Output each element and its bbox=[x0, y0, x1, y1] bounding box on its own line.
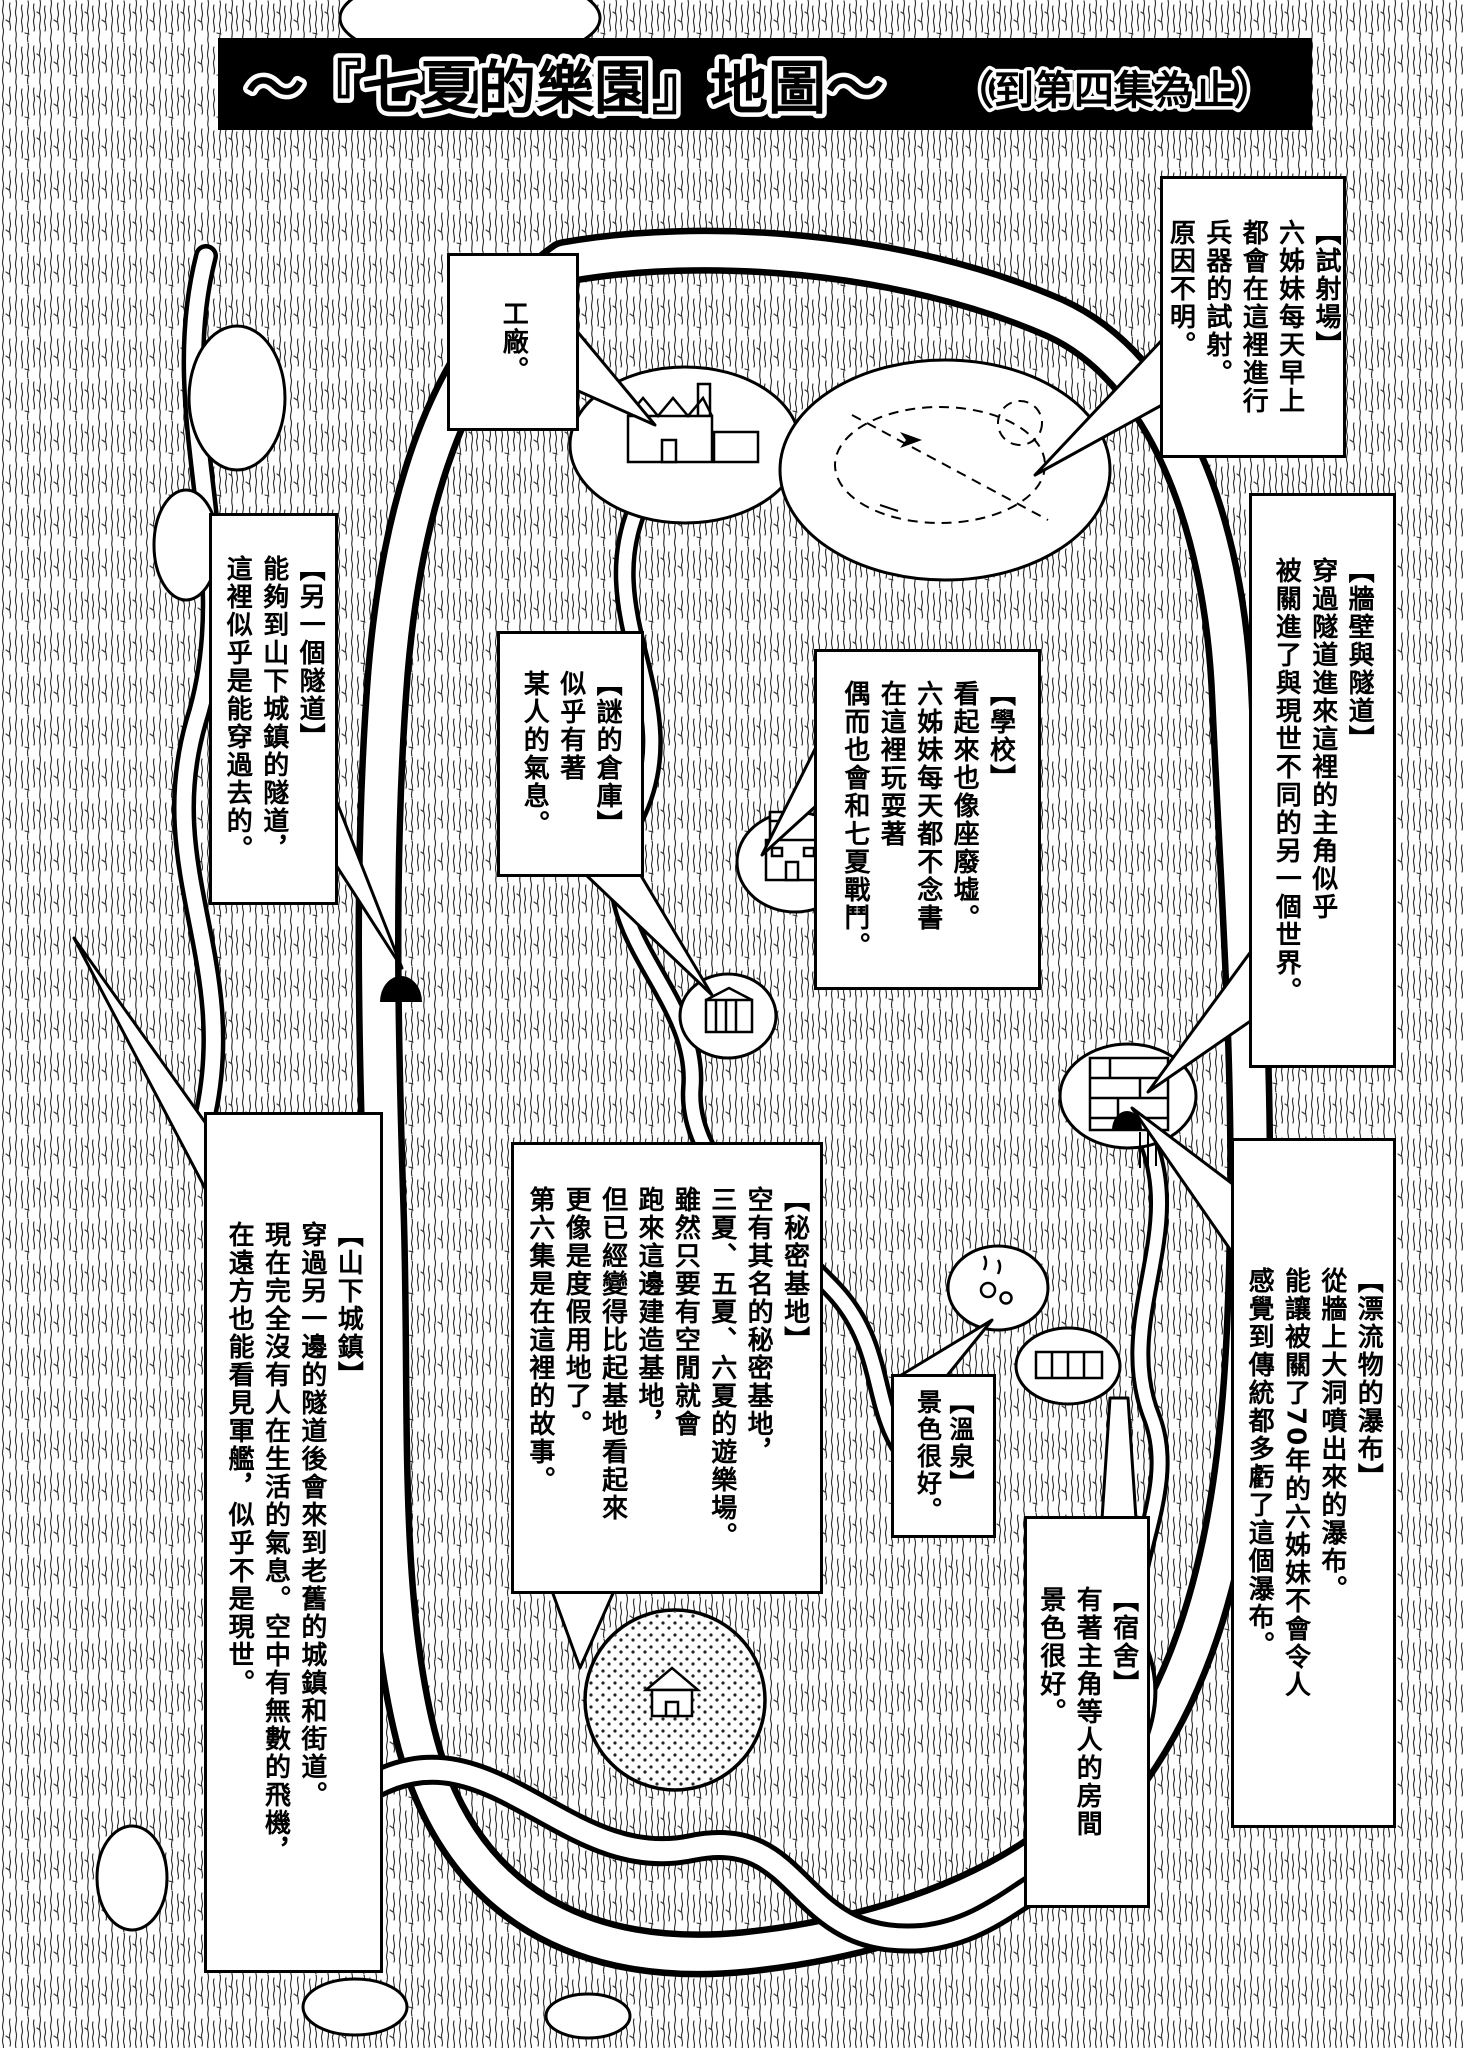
callout-secret-base: 【秘密基地】 空有其名的秘密基地， 三夏、五夏、六夏的遊樂場。 雖然只要有空閒就… bbox=[511, 1142, 823, 1594]
callout-dormitory-text: 【宿舍】 有著主角等人的房間 景色很好。 bbox=[1032, 1586, 1141, 1838]
callout-hot-spring-text: 【溫泉】 景色很好。 bbox=[911, 1389, 976, 1524]
callout-test-range: 【試射場】 六姊妹每天早上 都會在這裡進行 兵器的試射。 原因不明。 bbox=[1160, 176, 1346, 458]
callout-town-text: 【山下城鎮】 穿過另一邊的隧道後會來到老舊的城鎮和街道。 現在完全沒有人在生活的… bbox=[221, 1221, 367, 1865]
callout-warehouse-text: 【謎的倉庫】 似乎有著 某人的氣息。 bbox=[516, 670, 625, 838]
callout-another-tunnel: 【另一個隧道】 能夠到山下城鎮的隧道， 這裡似乎是能穿過去的。 bbox=[209, 513, 338, 905]
callout-waterfall-text: 【漂流物的瀑布】 從牆上大洞噴出來的瀑布。 能讓被關了70年的六姊妹不會令人 感… bbox=[1241, 1267, 1387, 1699]
callout-school-tail bbox=[762, 745, 817, 855]
callout-waterfall-tail bbox=[1132, 1108, 1234, 1255]
callout-secret-base-text: 【秘密基地】 空有其名的秘密基地， 三夏、五夏、六夏的遊樂場。 雖然只要有空閒就… bbox=[521, 1186, 812, 1550]
callout-warehouse-tail bbox=[585, 874, 712, 995]
map-title: ～『七夏的樂園』地圖～ bbox=[246, 54, 884, 122]
callout-hot-spring-tail bbox=[898, 1320, 992, 1377]
map-title-suffix: （到第四集為止） bbox=[954, 68, 1274, 114]
callout-school-text: 【學校】 看起來也像座廢墟。 六姊妹每天都不念書 在這裡玩耍著 偶而也會和七夏戰… bbox=[837, 680, 1019, 960]
callout-school: 【學校】 看起來也像座廢墟。 六姊妹每天都不念書 在這裡玩耍著 偶而也會和七夏戰… bbox=[814, 649, 1041, 990]
callout-test-range-tail bbox=[1035, 340, 1162, 475]
callout-town: 【山下城鎮】 穿過另一邊的隧道後會來到老舊的城鎮和街道。 現在完全沒有人在生活的… bbox=[204, 1112, 383, 1973]
callout-another-tunnel-tail bbox=[336, 800, 402, 968]
callout-secret-base-tail bbox=[552, 1591, 614, 1668]
callout-wall-tunnel: 【牆壁與隧道】 穿過隧道進來這裡的主角似乎 被關進了與現世不同的另一個世界。 bbox=[1249, 493, 1396, 1068]
callout-test-range-text: 【試射場】 六姊妹每天早上 都會在這裡進行 兵器的試射。 原因不明。 bbox=[1162, 219, 1344, 415]
callout-another-tunnel-text: 【另一個隧道】 能夠到山下城鎮的隧道， 這裡似乎是能穿過去的。 bbox=[219, 555, 328, 863]
callout-hot-spring: 【溫泉】 景色很好。 bbox=[891, 1374, 996, 1538]
callout-wall-tunnel-tail bbox=[1148, 950, 1252, 1092]
callout-dormitory: 【宿舍】 有著主角等人的房間 景色很好。 bbox=[1024, 1516, 1150, 1908]
callout-factory-text: 工廠。 bbox=[495, 300, 531, 384]
callout-dormitory-tail bbox=[1102, 1398, 1136, 1519]
manga-map-page: ～『七夏的樂園』地圖～ （到第四集為止） 工廠。 【試射場】 六姊妹每天早上 都… bbox=[0, 0, 1464, 2048]
callout-wall-tunnel-text: 【牆壁與隧道】 穿過隧道進來這裡的主角似乎 被關進了與現世不同的另一個世界。 bbox=[1268, 557, 1377, 1005]
callout-factory: 工廠。 bbox=[447, 253, 579, 431]
callout-town-tail bbox=[74, 938, 207, 1192]
callout-factory-tail bbox=[576, 330, 655, 425]
callout-warehouse: 【謎的倉庫】 似乎有著 某人的氣息。 bbox=[497, 631, 644, 877]
callout-waterfall: 【漂流物的瀑布】 從牆上大洞噴出來的瀑布。 能讓被關了70年的六姊妹不會令人 感… bbox=[1231, 1138, 1396, 1828]
title-banner: ～『七夏的樂園』地圖～ （到第四集為止） bbox=[218, 38, 1312, 130]
